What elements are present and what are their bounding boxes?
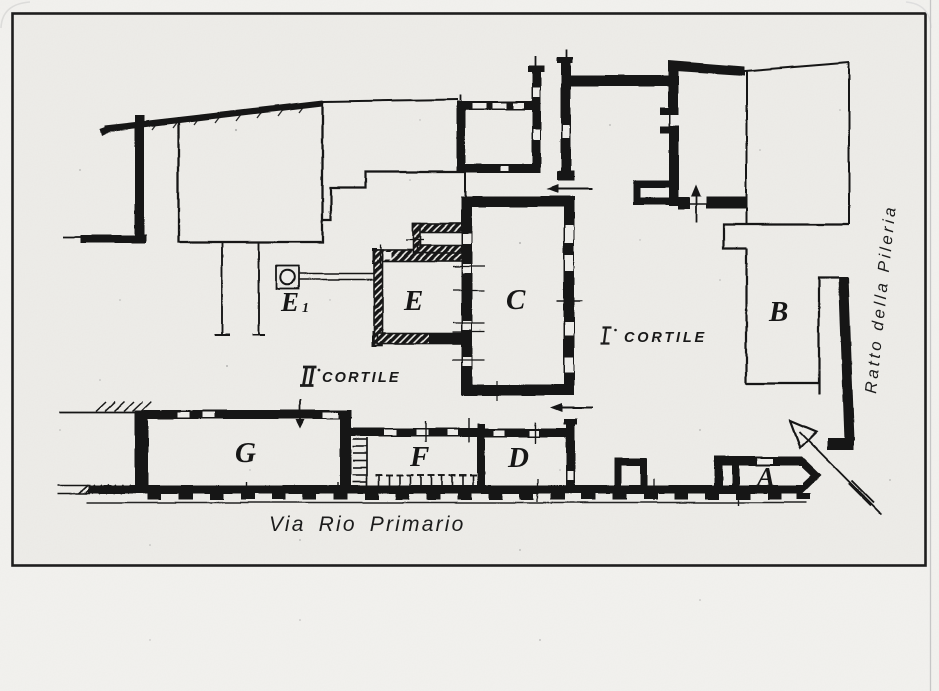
svg-text:Via Rio Primario: Via Rio Primario bbox=[269, 513, 466, 536]
svg-text:1: 1 bbox=[302, 301, 309, 316]
svg-text:CORTILE: CORTILE bbox=[624, 330, 707, 346]
svg-text:B: B bbox=[768, 296, 788, 328]
svg-text:E: E bbox=[280, 287, 299, 317]
svg-text:A: A bbox=[755, 462, 775, 492]
svg-text:G: G bbox=[235, 437, 256, 469]
svg-text:CORTILE: CORTILE bbox=[322, 370, 401, 386]
svg-text:C: C bbox=[506, 284, 526, 316]
svg-text:F: F bbox=[409, 441, 429, 473]
svg-text:D: D bbox=[507, 442, 529, 474]
svg-text:E: E bbox=[403, 285, 423, 317]
